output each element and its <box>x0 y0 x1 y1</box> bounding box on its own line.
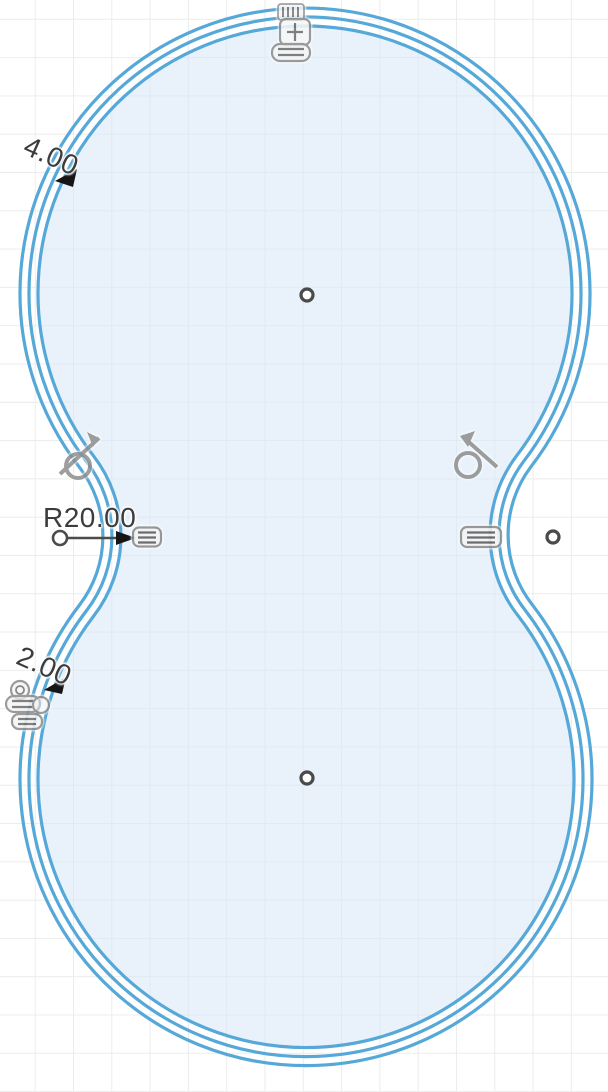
badge-frame <box>12 714 42 729</box>
sketch-point-top-center[interactable] <box>301 289 313 301</box>
dimension-label-waist-radius[interactable]: R20.00 <box>43 504 136 532</box>
equal-constraint-icon[interactable] <box>133 528 161 547</box>
constraint-stack-icon[interactable] <box>6 681 49 729</box>
sketch-svg <box>0 0 608 1092</box>
sketch-canvas[interactable]: 4.00 R20.00 2.00 <box>0 0 608 1092</box>
badge-frame <box>272 44 310 61</box>
sketch-point-right-waist[interactable] <box>547 531 559 543</box>
badge-frame <box>33 697 49 713</box>
leader-endpoint <box>53 531 67 545</box>
badge-frame <box>278 4 304 20</box>
equal-constraint-icon[interactable] <box>461 527 501 547</box>
sketch-point-bottom-center[interactable] <box>301 772 313 784</box>
